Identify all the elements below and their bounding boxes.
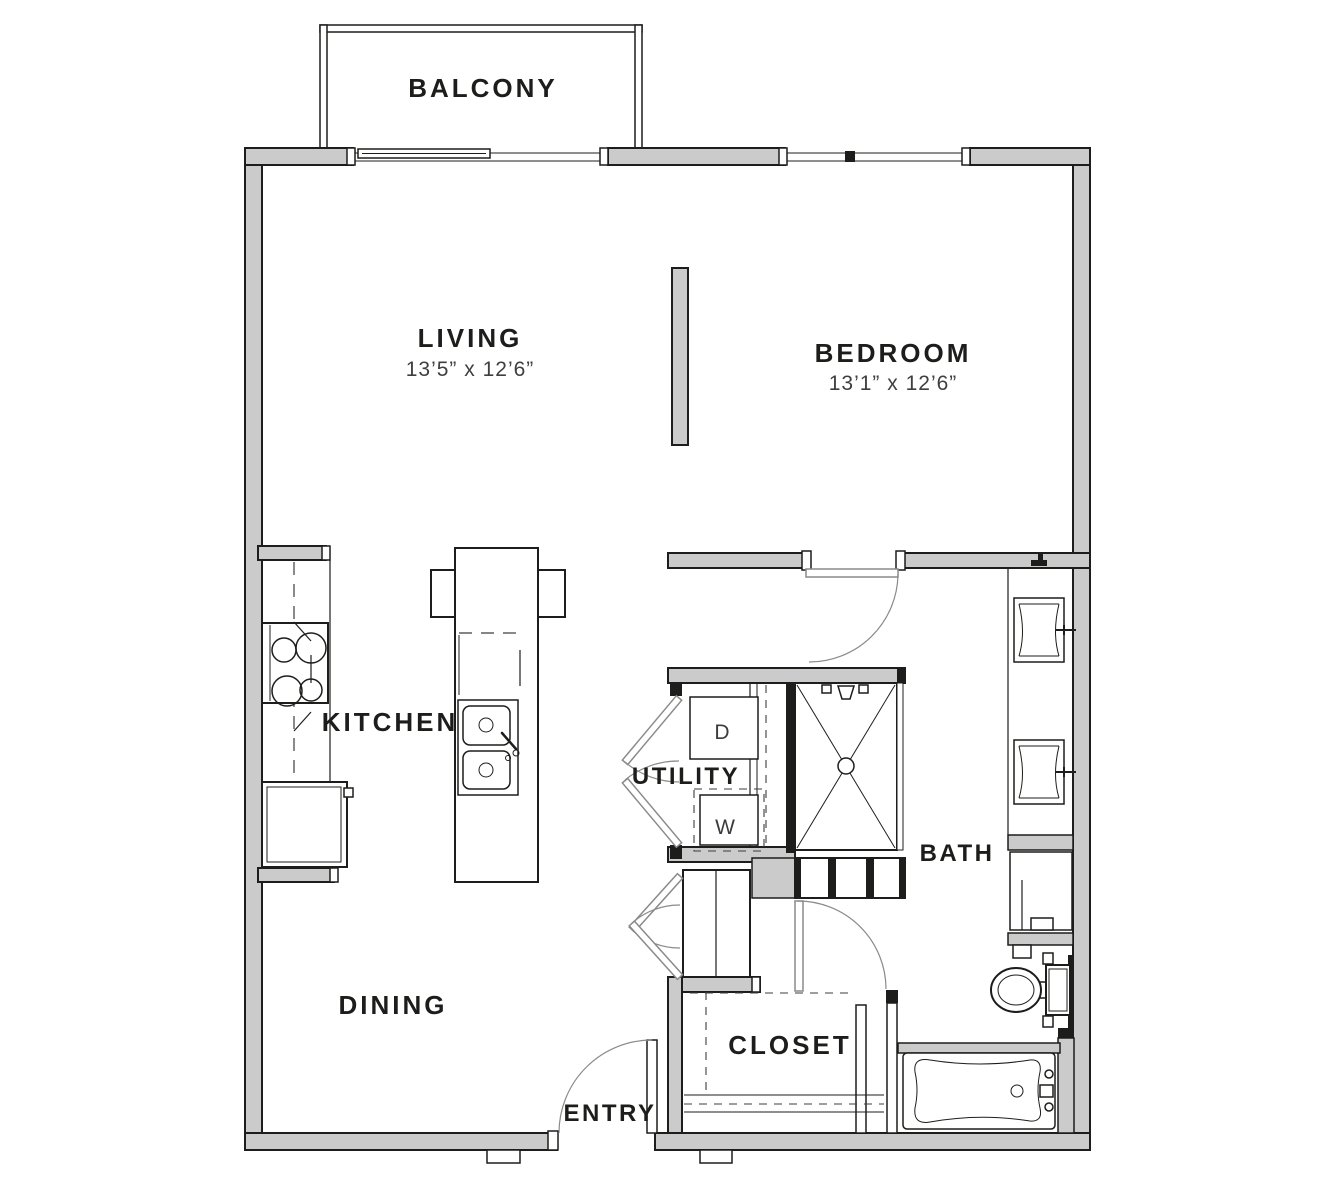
shower-glass xyxy=(897,683,903,850)
refrigerator xyxy=(262,782,353,867)
wall-bottom-b xyxy=(655,1133,1090,1150)
balcony-wall-right xyxy=(635,25,642,148)
island-end-cap-left xyxy=(431,570,455,617)
wall-chunk xyxy=(752,858,795,898)
island-double-sink xyxy=(458,700,519,795)
closet xyxy=(684,992,884,1133)
tub-north-wall xyxy=(898,1043,1060,1053)
bedroom-south-wall-b xyxy=(898,553,1090,568)
bedroom-door xyxy=(806,569,898,662)
pantry-door-leaf-bottom xyxy=(629,921,682,979)
bath-label: BATH xyxy=(920,840,995,867)
bedroom-south-wall-a xyxy=(668,553,808,568)
wall-top-a xyxy=(245,148,353,165)
bath-door-leaf xyxy=(795,901,803,991)
hall-pantry xyxy=(629,870,750,979)
stove xyxy=(262,622,328,731)
balcony-label: BALCONY xyxy=(408,73,558,103)
shower-wall xyxy=(786,683,795,853)
window-mullion xyxy=(845,151,855,162)
toilet xyxy=(991,953,1070,1027)
dryer-label: D xyxy=(714,721,729,744)
wall-right xyxy=(1073,148,1090,1150)
bedroom-door-leaf xyxy=(806,569,898,577)
bath-cabinet-bank xyxy=(795,858,905,898)
balcony-wall-top xyxy=(320,25,642,32)
living-dimensions: 13’5” x 12’6” xyxy=(406,358,535,381)
closet-west-wall xyxy=(668,977,682,1133)
floor-plan: BALCONY LIVING 13’5” x 12’6” BEDROOM 13’… xyxy=(0,0,1336,1191)
bedroom-dimensions: 13’1” x 12’6” xyxy=(829,372,958,395)
entry-door xyxy=(548,1040,657,1150)
kitchen-label: KITCHEN xyxy=(322,707,459,737)
bedroom-window xyxy=(779,148,970,165)
balcony-wall-left xyxy=(320,25,327,148)
vanity-end-wall xyxy=(1008,835,1073,850)
partial-wall-divider xyxy=(672,268,688,445)
entry-label: ENTRY xyxy=(564,1100,657,1127)
island-end-cap-right xyxy=(538,570,565,617)
wall-pier-b xyxy=(700,1150,732,1163)
tub-faucet-icon xyxy=(1040,1085,1053,1097)
kitchen-stub-north xyxy=(258,546,326,560)
vanity-sink-2 xyxy=(1014,740,1076,804)
vanity-sink-1 xyxy=(1014,598,1076,662)
washer-label: W xyxy=(715,816,735,839)
wall-top-b xyxy=(608,148,785,165)
bathtub xyxy=(903,1053,1055,1129)
niche-end-wall xyxy=(1008,933,1073,945)
wall-left xyxy=(245,148,262,1150)
wall-pier-a xyxy=(487,1150,520,1163)
dining-label: DINING xyxy=(339,990,448,1020)
kitchen-stub-south xyxy=(258,868,334,882)
bedroom-label: BEDROOM xyxy=(815,338,972,368)
bath-vanity xyxy=(1008,568,1076,930)
shower xyxy=(795,683,903,850)
living-label: LIVING xyxy=(418,323,523,353)
closet-partition xyxy=(856,1005,866,1133)
floor-plan-svg: BALCONY LIVING 13’5” x 12’6” BEDROOM 13’… xyxy=(0,0,1336,1191)
wall-top-c xyxy=(970,148,1090,165)
linen-niche xyxy=(1010,852,1072,930)
bath-door xyxy=(795,901,886,991)
closet-east-wall xyxy=(887,1003,897,1133)
utility-label: UTILITY xyxy=(632,763,740,790)
closet-north-wall xyxy=(682,977,760,992)
shower-drain-icon xyxy=(838,758,854,774)
wall-bottom-a xyxy=(245,1133,557,1150)
balcony-sliding-door xyxy=(347,148,608,165)
utility-door-leaf-top xyxy=(622,696,681,765)
utility-north-wall xyxy=(668,668,905,683)
pantry-door-leaf-top xyxy=(629,874,682,932)
closet-label: CLOSET xyxy=(728,1030,851,1060)
